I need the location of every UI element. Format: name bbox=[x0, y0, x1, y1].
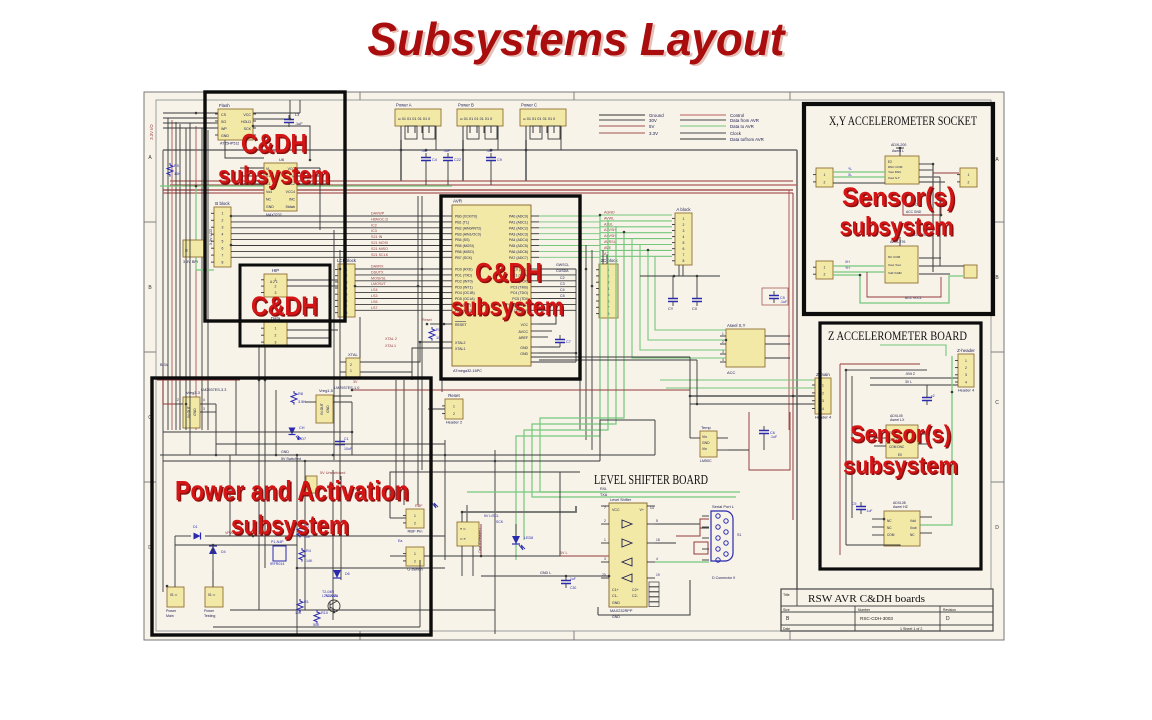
svg-text:PA6 (ADC6): PA6 (ADC6) bbox=[509, 250, 528, 254]
svg-text:2: 2 bbox=[604, 519, 606, 523]
svg-text:PA5 (ADC5): PA5 (ADC5) bbox=[509, 244, 528, 248]
svg-text:PB4 (SS): PB4 (SS) bbox=[455, 238, 470, 242]
svg-text:5V L/SCL: 5V L/SCL bbox=[484, 514, 499, 518]
svg-text:3: 3 bbox=[722, 350, 724, 354]
svg-text:2: 2 bbox=[222, 219, 224, 223]
svg-text:7: 7 bbox=[683, 253, 685, 257]
svg-text:Header 2: Header 2 bbox=[446, 420, 463, 425]
svg-text:Data to AVR: Data to AVR bbox=[730, 124, 754, 129]
svg-text:C9: C9 bbox=[497, 158, 502, 162]
svg-text:C3: C3 bbox=[560, 282, 565, 286]
svg-text:4: 4 bbox=[722, 358, 724, 362]
svg-text:Reset: Reset bbox=[422, 318, 432, 322]
svg-text:LEVEL SHIFTER BOARD: LEVEL SHIFTER BOARD bbox=[594, 472, 708, 487]
svg-text:XTAL2: XTAL2 bbox=[455, 341, 465, 345]
svg-text:C&DH: C&DH bbox=[241, 129, 307, 159]
svg-text:Z-main: Z-main bbox=[816, 372, 830, 377]
svg-text:2: 2 bbox=[275, 285, 277, 289]
svg-text:C2+: C2+ bbox=[632, 588, 639, 592]
svg-text:2: 2 bbox=[177, 398, 179, 402]
svg-text:19: 19 bbox=[656, 573, 660, 577]
svg-text:LS3: LS3 bbox=[371, 294, 378, 298]
svg-text:4: 4 bbox=[822, 407, 824, 411]
svg-text:CH: CH bbox=[299, 426, 305, 430]
svg-text:LED8: LED8 bbox=[524, 536, 533, 540]
svg-text:PD3 (INT1): PD3 (INT1) bbox=[455, 285, 473, 289]
svg-text:AVR: AVR bbox=[453, 199, 463, 204]
svg-text:Power C: Power C bbox=[521, 103, 537, 108]
svg-text:5V: 5V bbox=[649, 124, 654, 129]
svg-text:S21 MOSI: S21 MOSI bbox=[371, 241, 388, 245]
svg-text:LS7: LS7 bbox=[371, 306, 378, 310]
svg-text:PB1 (T1): PB1 (T1) bbox=[455, 221, 469, 225]
svg-text:2: 2 bbox=[968, 180, 970, 184]
svg-text:Header 4: Header 4 bbox=[958, 388, 975, 393]
svg-text:1: 1 bbox=[414, 552, 416, 556]
svg-text:1: 1 bbox=[275, 327, 277, 331]
svg-text:Z ACCELEROMETER BOARD: Z ACCELEROMETER BOARD bbox=[828, 329, 967, 343]
svg-text:3: 3 bbox=[604, 557, 606, 561]
svg-text:NC: NC bbox=[910, 533, 915, 537]
svg-text:1: 1 bbox=[604, 538, 606, 542]
svg-text:3.5K: 3.5K bbox=[298, 400, 306, 404]
svg-text:-5Vit Z: -5Vit Z bbox=[905, 372, 915, 376]
svg-text:Data from AVR: Data from AVR bbox=[730, 118, 759, 123]
svg-text:1: 1 bbox=[414, 514, 416, 518]
svg-text:1: 1 bbox=[453, 404, 455, 408]
svg-text:AT25HP512: AT25HP512 bbox=[220, 142, 239, 146]
svg-text:1 Sheet 1 of 2: 1 Sheet 1 of 2 bbox=[900, 627, 922, 631]
svg-text:C30: C30 bbox=[570, 586, 576, 590]
svg-text:RXL: RXL bbox=[600, 487, 607, 491]
svg-text:NC COM: NC COM bbox=[888, 255, 901, 259]
svg-text:.1uF: .1uF bbox=[770, 435, 778, 439]
svg-text:Size: Size bbox=[783, 608, 790, 612]
svg-text:3: 3 bbox=[203, 407, 205, 411]
svg-text:≡: ≡ bbox=[185, 248, 188, 254]
svg-text:5V Switched: 5V Switched bbox=[281, 457, 301, 461]
svg-text:2: 2 bbox=[275, 334, 277, 338]
svg-text:Aseel HZ: Aseel HZ bbox=[893, 505, 909, 509]
svg-text:IRFR014: IRFR014 bbox=[270, 562, 284, 566]
svg-text:AGND: AGND bbox=[604, 211, 615, 215]
svg-text:XTAL1: XTAL1 bbox=[385, 344, 396, 348]
svg-text:2: 2 bbox=[965, 366, 967, 370]
svg-text:HifA/OC.D: HifA/OC.D bbox=[371, 217, 389, 221]
svg-text:PA3 (ADC3): PA3 (ADC3) bbox=[509, 232, 528, 236]
svg-text:Xout: Xout bbox=[910, 526, 917, 530]
svg-text:Power and Activation: Power and Activation bbox=[175, 475, 409, 506]
svg-text:MAX232RPP: MAX232RPP bbox=[610, 609, 633, 613]
svg-text:SCK: SCK bbox=[496, 520, 504, 524]
svg-text:5V L: 5V L bbox=[560, 551, 568, 555]
svg-text:7: 7 bbox=[222, 254, 224, 258]
svg-text:c2: c2 bbox=[931, 394, 935, 398]
svg-text:═ ≡: ═ ≡ bbox=[459, 537, 466, 541]
svg-text:Xout S-T: Xout S-T bbox=[888, 176, 900, 180]
svg-text:1: 1 bbox=[683, 217, 685, 221]
svg-text:X,Y ACCELEROMETER SOCKET: X,Y ACCELEROMETER SOCKET bbox=[829, 114, 977, 128]
svg-text:═ 01 01 01 01 01 0: ═ 01 01 01 01 01 0 bbox=[397, 117, 430, 121]
svg-text:HOLD: HOLD bbox=[241, 120, 251, 124]
svg-text:.1uF: .1uF bbox=[866, 509, 872, 513]
svg-text:2: 2 bbox=[453, 412, 455, 416]
svg-text:10K: 10K bbox=[174, 172, 181, 176]
svg-text:A 2 1: A 2 1 bbox=[270, 280, 278, 284]
svg-text:PB5 (MOSI): PB5 (MOSI) bbox=[455, 244, 474, 248]
svg-text:B.3V: B.3V bbox=[160, 363, 169, 367]
svg-text:subsystem: subsystem bbox=[218, 162, 330, 190]
svg-text:VCC: VCC bbox=[521, 323, 529, 327]
svg-text:ACC VCC1: ACC VCC1 bbox=[905, 296, 922, 300]
svg-text:COM: COM bbox=[887, 533, 895, 537]
svg-text:GWSCL: GWSCL bbox=[556, 263, 569, 267]
svg-text:PB6 (MISO): PB6 (MISO) bbox=[455, 250, 474, 254]
svg-text:4: 4 bbox=[203, 398, 205, 402]
svg-text:Data to/from AVR: Data to/from AVR bbox=[730, 137, 764, 142]
svg-text:2: 2 bbox=[414, 559, 416, 563]
svg-text:3: 3 bbox=[222, 226, 224, 230]
svg-text:Temp: Temp bbox=[701, 425, 712, 430]
svg-text:L2N2222A: L2N2222A bbox=[322, 594, 339, 598]
svg-text:PA4 (ADC4): PA4 (ADC4) bbox=[509, 238, 528, 242]
svg-text:3.3V LCD: 3.3V LCD bbox=[209, 229, 213, 246]
svg-text:C4: C4 bbox=[432, 158, 437, 162]
svg-text:CX: CX bbox=[692, 307, 698, 311]
svg-text:NC: NC bbox=[266, 197, 272, 201]
svg-text:RBF: RBF bbox=[415, 504, 423, 508]
svg-text:GND: GND bbox=[266, 205, 274, 209]
svg-text:Header 4: Header 4 bbox=[815, 415, 832, 420]
svg-text:D: D bbox=[995, 525, 999, 531]
svg-text:3V L: 3V L bbox=[905, 380, 912, 384]
svg-text:PD1 (TXD): PD1 (TXD) bbox=[455, 274, 472, 278]
svg-text:R1: R1 bbox=[304, 600, 309, 604]
svg-text:AVCC: AVCC bbox=[519, 330, 529, 334]
svg-text:C1-: C1- bbox=[612, 594, 619, 598]
svg-text:Power B: Power B bbox=[458, 103, 474, 108]
svg-text:D: D bbox=[946, 616, 950, 622]
svg-text:30V: 30V bbox=[649, 118, 657, 123]
svg-text:3: 3 bbox=[683, 229, 685, 233]
svg-text:3.3V: 3.3V bbox=[649, 131, 658, 136]
svg-text:R8: R8 bbox=[298, 392, 303, 396]
svg-text:PB0 (XCK/T0): PB0 (XCK/T0) bbox=[455, 215, 477, 219]
svg-text:TXA: TXA bbox=[600, 493, 608, 497]
svg-text:Vdd VddD: Vdd VddD bbox=[888, 271, 903, 275]
svg-text:14: 14 bbox=[650, 506, 654, 510]
svg-text:7: 7 bbox=[604, 506, 606, 510]
svg-text:3V: 3V bbox=[353, 380, 358, 384]
svg-text:YL: YL bbox=[848, 167, 852, 171]
svg-text:ADXL08: ADXL08 bbox=[893, 501, 906, 505]
svg-text:.1uF: .1uF bbox=[295, 122, 303, 126]
svg-text:MOSI/SL: MOSI/SL bbox=[371, 276, 386, 280]
svg-text:subsystem: subsystem bbox=[451, 293, 564, 321]
svg-text:IC3: IC3 bbox=[371, 229, 377, 233]
svg-text:NC: NC bbox=[887, 526, 892, 530]
svg-text:4: 4 bbox=[965, 380, 967, 384]
svg-text:C2-: C2- bbox=[632, 594, 639, 598]
svg-text:LS6: LS6 bbox=[371, 300, 378, 304]
svg-text:PA1 (ADC1): PA1 (ADC1) bbox=[509, 221, 528, 225]
svg-text:Z-header: Z-header bbox=[957, 348, 975, 353]
svg-text:subsystem: subsystem bbox=[231, 510, 349, 540]
svg-text:.1uF: .1uF bbox=[443, 149, 451, 153]
svg-text:14K: 14K bbox=[306, 559, 313, 563]
svg-text:Xout Yout: Xout Yout bbox=[888, 263, 901, 267]
svg-text:1: 1 bbox=[824, 266, 826, 270]
svg-text:GND: GND bbox=[612, 601, 620, 605]
svg-text:GND: GND bbox=[520, 346, 528, 350]
svg-text:C&DH: C&DH bbox=[251, 291, 318, 321]
svg-text:HIP: HIP bbox=[272, 268, 279, 273]
svg-text:LM2937ES-3.3: LM2937ES-3.3 bbox=[201, 388, 226, 392]
svg-text:ACC: ACC bbox=[727, 370, 736, 375]
svg-text:PB7 (SCK): PB7 (SCK) bbox=[455, 256, 472, 260]
svg-text:A4VSH: A4VSH bbox=[604, 234, 616, 238]
svg-text:VCC: VCC bbox=[612, 508, 620, 512]
svg-text:Power: Power bbox=[204, 609, 215, 613]
svg-text:C22: C22 bbox=[454, 158, 461, 162]
svg-text:GND: GND bbox=[193, 408, 197, 416]
svg-text:1uF: 1uF bbox=[570, 577, 576, 581]
svg-text:ADXL05: ADXL05 bbox=[890, 414, 903, 418]
svg-text:═ 01 01 01 01 01 0: ═ 01 01 01 01 01 0 bbox=[522, 117, 555, 121]
svg-text:Subsystems Layout: Subsystems Layout bbox=[368, 13, 787, 65]
svg-text:R10: R10 bbox=[321, 611, 328, 615]
svg-text:10K: 10K bbox=[295, 611, 302, 615]
svg-text:GND: GND bbox=[612, 615, 620, 619]
svg-text:3.3V BPI: 3.3V BPI bbox=[183, 260, 198, 264]
svg-text:S21 IN: S21 IN bbox=[371, 235, 383, 239]
svg-text:4: 4 bbox=[222, 233, 224, 237]
svg-text:R5: R5 bbox=[174, 164, 179, 168]
svg-text:GND: GND bbox=[281, 450, 289, 454]
svg-text:V+: V+ bbox=[640, 508, 645, 512]
svg-text:.1uF: .1uF bbox=[780, 300, 788, 304]
svg-text:XTAL: XTAL bbox=[348, 352, 358, 357]
svg-text:01 ═: 01 ═ bbox=[208, 593, 216, 597]
svg-text:Number: Number bbox=[858, 608, 871, 612]
svg-text:1: 1 bbox=[822, 383, 824, 387]
svg-text:1: 1 bbox=[965, 359, 967, 363]
svg-text:C9: C9 bbox=[852, 502, 856, 506]
svg-text:RESET: RESET bbox=[455, 323, 468, 327]
svg-text:8: 8 bbox=[222, 261, 224, 265]
svg-text:LM2937ES-1.0: LM2937ES-1.0 bbox=[334, 386, 359, 390]
svg-text:ATmega32-16PC: ATmega32-16PC bbox=[453, 369, 482, 373]
svg-text:Power: Power bbox=[166, 609, 177, 613]
svg-text:≡ ═: ≡ ═ bbox=[460, 527, 466, 531]
svg-text:R4: R4 bbox=[306, 549, 311, 553]
svg-text:Serial Port L: Serial Port L bbox=[712, 504, 735, 509]
svg-text:Vdd: Vdd bbox=[910, 519, 916, 523]
svg-text:3: 3 bbox=[822, 399, 824, 403]
svg-text:L3: L3 bbox=[295, 113, 299, 117]
svg-text:2: 2 bbox=[824, 180, 826, 184]
svg-text:PD0 (RXD): PD0 (RXD) bbox=[455, 268, 473, 272]
svg-text:Testing: Testing bbox=[204, 614, 215, 618]
svg-text:5: 5 bbox=[222, 240, 224, 244]
svg-text:D Connector 9: D Connector 9 bbox=[712, 576, 735, 580]
svg-text:A block: A block bbox=[676, 207, 691, 212]
svg-text:RBF Pin: RBF Pin bbox=[408, 529, 423, 534]
svg-text:2: 2 bbox=[350, 363, 352, 367]
svg-text:GND: GND bbox=[326, 405, 330, 413]
svg-text:CUSDA: CUSDA bbox=[556, 269, 569, 273]
svg-text:XTAL 2: XTAL 2 bbox=[385, 337, 397, 341]
svg-text:DSUTX: DSUTX bbox=[371, 270, 384, 274]
svg-text:AVWL: AVWL bbox=[604, 216, 614, 220]
svg-text:50K: 50K bbox=[313, 623, 320, 627]
svg-text:Clock: Clock bbox=[730, 131, 742, 136]
svg-text:CS: CS bbox=[221, 113, 227, 117]
svg-text:5: 5 bbox=[683, 241, 685, 245]
svg-text:XTAL1: XTAL1 bbox=[455, 347, 465, 351]
svg-text:Aseel X,Y: Aseel X,Y bbox=[727, 323, 746, 328]
svg-text:PA2 (ADC2): PA2 (ADC2) bbox=[509, 226, 528, 230]
svg-text:CY: CY bbox=[668, 307, 674, 311]
svg-text:B block: B block bbox=[215, 201, 230, 206]
svg-text:2: 2 bbox=[824, 273, 826, 277]
svg-text:1: 1 bbox=[968, 173, 970, 177]
svg-text:subsystem: subsystem bbox=[843, 453, 958, 480]
svg-text:S21 SCLK: S21 SCLK bbox=[371, 253, 389, 257]
svg-text:GND L: GND L bbox=[540, 571, 551, 575]
svg-text:2: 2 bbox=[414, 521, 416, 525]
svg-text:A2UL: A2UL bbox=[604, 222, 613, 226]
svg-text:Vreg1.5: Vreg1.5 bbox=[319, 388, 334, 393]
svg-text:3: 3 bbox=[275, 341, 277, 345]
svg-text:GND: GND bbox=[702, 441, 710, 445]
svg-text:S21 MISO: S21 MISO bbox=[371, 247, 388, 251]
svg-text:01 ═: 01 ═ bbox=[170, 593, 178, 597]
svg-text:LMOSI/T: LMOSI/T bbox=[371, 282, 386, 286]
svg-text:3.3V I/O: 3.3V I/O bbox=[149, 124, 154, 140]
svg-text:DAVWP: DAVWP bbox=[371, 212, 385, 216]
svg-text:RSW AVR C&DH boards: RSW AVR C&DH boards bbox=[808, 593, 925, 605]
svg-text:═ 01 01 01 01 01 0: ═ 01 01 01 01 01 0 bbox=[459, 117, 492, 121]
svg-text:Vin: Vin bbox=[702, 447, 707, 451]
svg-text:Stdwk: Stdwk bbox=[285, 205, 295, 209]
svg-text:Revision: Revision bbox=[943, 608, 956, 612]
svg-text:INC: INC bbox=[289, 197, 296, 201]
svg-text:XH: XH bbox=[845, 260, 850, 264]
svg-text:D4: D4 bbox=[221, 550, 226, 554]
svg-text:LS4: LS4 bbox=[371, 288, 378, 292]
svg-text:6: 6 bbox=[222, 247, 224, 251]
svg-text:C7: C7 bbox=[566, 340, 571, 344]
svg-text:2: 2 bbox=[722, 340, 724, 344]
svg-text:DNC COM: DNC COM bbox=[888, 165, 903, 169]
svg-text:AREF: AREF bbox=[519, 336, 528, 340]
svg-text:E2: E2 bbox=[888, 160, 892, 164]
svg-text:NC: NC bbox=[887, 519, 892, 523]
svg-text:C&DH: C&DH bbox=[475, 258, 542, 288]
svg-text:1: 1 bbox=[222, 212, 224, 216]
svg-text:1: 1 bbox=[824, 173, 826, 177]
svg-text:4: 4 bbox=[656, 557, 658, 561]
svg-text:D1: D1 bbox=[193, 525, 198, 529]
svg-text:PD2 (INT0): PD2 (INT0) bbox=[455, 279, 473, 283]
svg-text:C: C bbox=[995, 400, 999, 406]
svg-text:AVRSL: AVRSL bbox=[604, 240, 616, 244]
svg-text:subsystem: subsystem bbox=[840, 211, 954, 241]
svg-text:IN OUT: IN OUT bbox=[320, 403, 324, 415]
svg-text:Reset: Reset bbox=[448, 393, 460, 398]
svg-text:Power A: Power A bbox=[396, 103, 412, 108]
svg-text:Sensor(s): Sensor(s) bbox=[850, 421, 951, 448]
svg-text:ADXL200: ADXL200 bbox=[891, 143, 906, 147]
svg-text:1: 1 bbox=[350, 369, 352, 373]
svg-text:WP: WP bbox=[221, 127, 227, 131]
svg-text:Vin: Vin bbox=[702, 435, 707, 439]
svg-text:Date: Date bbox=[783, 627, 790, 631]
svg-text:PB2 (AIN0/INT2): PB2 (AIN0/INT2) bbox=[455, 226, 481, 230]
svg-text:PB3 (AIN1/OC0): PB3 (AIN1/OC0) bbox=[455, 232, 481, 236]
svg-text:4: 4 bbox=[683, 235, 685, 239]
svg-text:Sensor(s): Sensor(s) bbox=[842, 182, 955, 212]
svg-text:2: 2 bbox=[683, 223, 685, 227]
svg-text:Vreg3.3: Vreg3.3 bbox=[186, 390, 201, 395]
svg-text:A3VSH: A3VSH bbox=[604, 228, 616, 232]
svg-text:Level Shifter: Level Shifter bbox=[610, 498, 632, 502]
svg-text:SO: SO bbox=[221, 120, 226, 124]
svg-text:6: 6 bbox=[683, 247, 685, 251]
svg-text:Ea: Ea bbox=[398, 539, 402, 543]
svg-text:18: 18 bbox=[656, 538, 660, 542]
svg-text:PA0 (ADC0): PA0 (ADC0) bbox=[509, 215, 528, 219]
svg-text:GND: GND bbox=[520, 352, 528, 356]
svg-text:C1+: C1+ bbox=[612, 588, 619, 592]
svg-text:C4: C4 bbox=[560, 288, 565, 292]
svg-text:LM50C: LM50C bbox=[700, 459, 712, 463]
svg-text:20: 20 bbox=[602, 573, 606, 577]
svg-text:IC2: IC2 bbox=[371, 223, 377, 227]
svg-text:2: 2 bbox=[822, 391, 824, 395]
svg-text:RSC-CDH-3003: RSC-CDH-3003 bbox=[860, 616, 893, 621]
svg-text:DAVRX: DAVRX bbox=[371, 265, 384, 269]
svg-text:D6: D6 bbox=[345, 572, 350, 576]
svg-text:VCC: VCC bbox=[243, 113, 251, 117]
svg-text:3: 3 bbox=[965, 373, 967, 377]
svg-text:8: 8 bbox=[683, 259, 685, 263]
svg-text:C2: C2 bbox=[560, 276, 565, 280]
svg-text:Flash: Flash bbox=[219, 103, 230, 108]
svg-text:S1: S1 bbox=[737, 533, 741, 537]
svg-text:Main: Main bbox=[166, 614, 174, 618]
svg-text:C1: C1 bbox=[344, 437, 349, 441]
svg-text:Yout DNC: Yout DNC bbox=[888, 170, 902, 174]
svg-text:Aseel L: Aseel L bbox=[892, 149, 904, 153]
svg-text:GND: GND bbox=[221, 134, 229, 138]
svg-text:Title: Title bbox=[783, 593, 790, 597]
svg-text:1: 1 bbox=[722, 332, 724, 336]
svg-text:5: 5 bbox=[656, 519, 658, 523]
